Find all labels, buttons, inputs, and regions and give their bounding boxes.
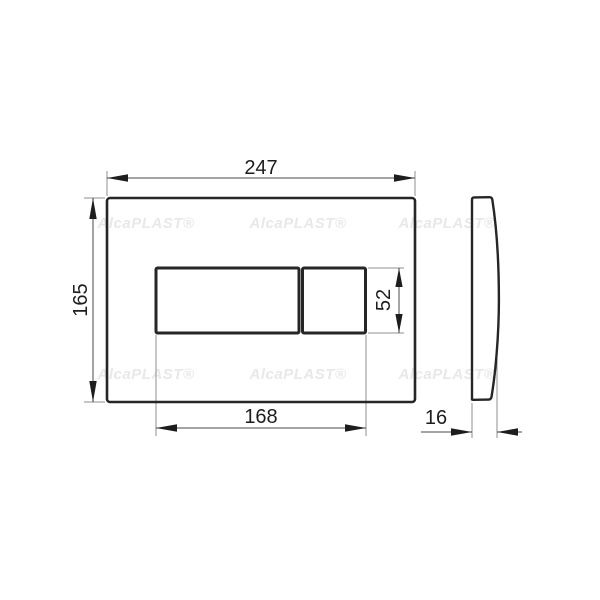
- arrowhead-up-icon: [89, 198, 96, 219]
- watermark-text: AlcaPLAST®: [398, 215, 496, 232]
- arrowhead-left-icon: [107, 174, 128, 181]
- arrowhead-left-icon: [497, 428, 518, 435]
- watermark-text: AlcaPLAST®: [249, 215, 347, 232]
- arrowhead-right-icon: [451, 428, 472, 435]
- arrowhead-left-icon: [156, 424, 177, 431]
- arrowhead-up-icon: [395, 268, 402, 287]
- arrowhead-right-icon: [345, 424, 366, 431]
- arrowhead-down-icon: [89, 381, 96, 402]
- large-flush-button: [156, 268, 299, 333]
- watermark-text: AlcaPLAST®: [97, 366, 195, 383]
- dimension-value-plate-width: 247: [244, 157, 277, 179]
- extension-lines: [84, 171, 497, 438]
- dimension-button-height: 52: [373, 268, 403, 333]
- dimension-value-button-width: 168: [244, 406, 277, 428]
- watermark-text: AlcaPLAST®: [249, 366, 347, 383]
- arrowhead-right-icon: [394, 174, 415, 181]
- dimension-value-button-height: 52: [373, 289, 395, 311]
- arrowhead-down-icon: [395, 314, 402, 333]
- dimension-button-width: 168: [156, 406, 366, 432]
- small-flush-button: [303, 268, 366, 333]
- dimension-value-plate-thickness: 16: [425, 407, 447, 429]
- watermark-text: AlcaPLAST®: [97, 215, 195, 232]
- flush-plate-drawing: AlcaPLAST® AlcaPLAST® AlcaPLAST® AlcaPLA…: [0, 0, 600, 600]
- dimension-plate-height: 165: [70, 198, 97, 402]
- dimension-plate-width: 247: [107, 157, 415, 182]
- technical-drawing-canvas: AlcaPLAST® AlcaPLAST® AlcaPLAST® AlcaPLA…: [0, 0, 600, 600]
- dimension-value-plate-height: 165: [70, 283, 92, 316]
- watermark-text: AlcaPLAST®: [398, 366, 496, 383]
